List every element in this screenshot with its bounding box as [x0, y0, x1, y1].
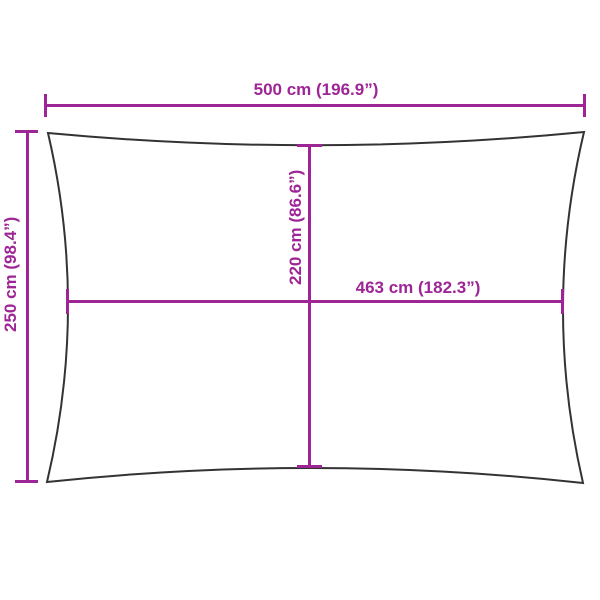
- inner-height-bottom-tick: [297, 465, 322, 468]
- outer-height-dimension-line: [26, 130, 29, 483]
- inner-width-left-tick: [66, 289, 69, 314]
- inner-width-dimension-label: 463 cm (182.3”): [318, 278, 518, 298]
- inner-height-dimension-label: 220 cm (86.6”): [286, 175, 306, 285]
- outer-width-left-tick: [44, 94, 47, 117]
- dimension-diagram: 500 cm (196.9”) 250 cm (98.4”) 220 cm (8…: [0, 0, 600, 600]
- inner-height-dimension-line: [308, 144, 311, 468]
- inner-height-top-tick: [297, 144, 322, 147]
- inner-width-right-tick: [561, 289, 564, 314]
- outer-height-dimension-label: 250 cm (98.4”): [1, 222, 21, 332]
- outer-width-dimension-line: [45, 104, 585, 107]
- outer-height-top-tick: [15, 130, 38, 133]
- outer-height-bottom-tick: [15, 480, 38, 483]
- sail-outline-path: [47, 132, 584, 483]
- inner-width-dimension-line: [67, 300, 563, 303]
- outer-width-dimension-label: 500 cm (196.9”): [166, 80, 466, 100]
- outer-width-right-tick: [583, 94, 586, 117]
